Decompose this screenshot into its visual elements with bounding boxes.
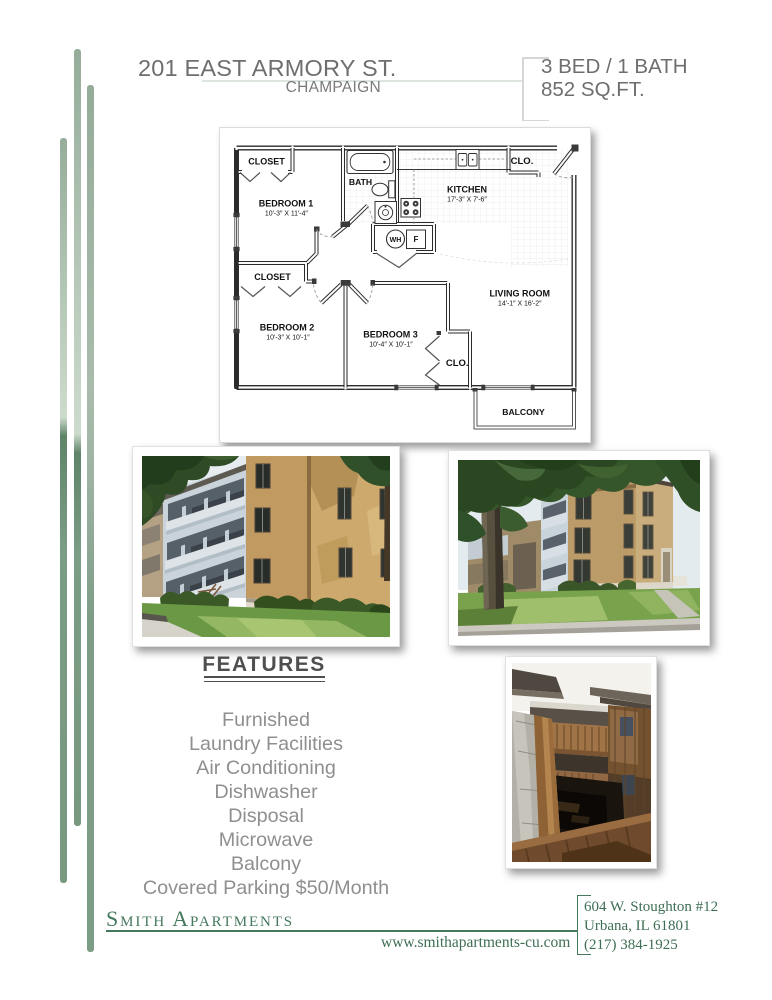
- svg-text:10′-3″ X 10′-1″: 10′-3″ X 10′-1″: [266, 335, 310, 342]
- svg-text:10′-3″ X 11′-4″: 10′-3″ X 11′-4″: [265, 211, 309, 218]
- svg-text:CLOSET: CLOSET: [248, 157, 285, 167]
- svg-text:BEDROOM 3: BEDROOM 3: [363, 330, 418, 340]
- svg-text:CLO.: CLO.: [446, 358, 469, 369]
- svg-text:10′-4″ X 10′-1″: 10′-4″ X 10′-1″: [369, 342, 413, 349]
- svg-text:BEDROOM 2: BEDROOM 2: [260, 323, 315, 333]
- svg-text:F: F: [414, 235, 419, 244]
- svg-text:17′-3″ X 7′-6″: 17′-3″ X 7′-6″: [447, 197, 487, 204]
- svg-text:BATH: BATH: [349, 177, 372, 187]
- svg-text:BALCONY: BALCONY: [502, 407, 545, 417]
- svg-text:WH: WH: [390, 237, 402, 244]
- svg-text:14′-1″ X 16′-2″: 14′-1″ X 16′-2″: [498, 301, 542, 308]
- svg-text:CLOSET: CLOSET: [254, 272, 291, 282]
- svg-text:KITCHEN: KITCHEN: [447, 185, 487, 195]
- svg-text:BEDROOM 1: BEDROOM 1: [259, 198, 314, 208]
- svg-text:LIVING ROOM: LIVING ROOM: [489, 289, 550, 299]
- svg-text:CLO.: CLO.: [511, 156, 534, 167]
